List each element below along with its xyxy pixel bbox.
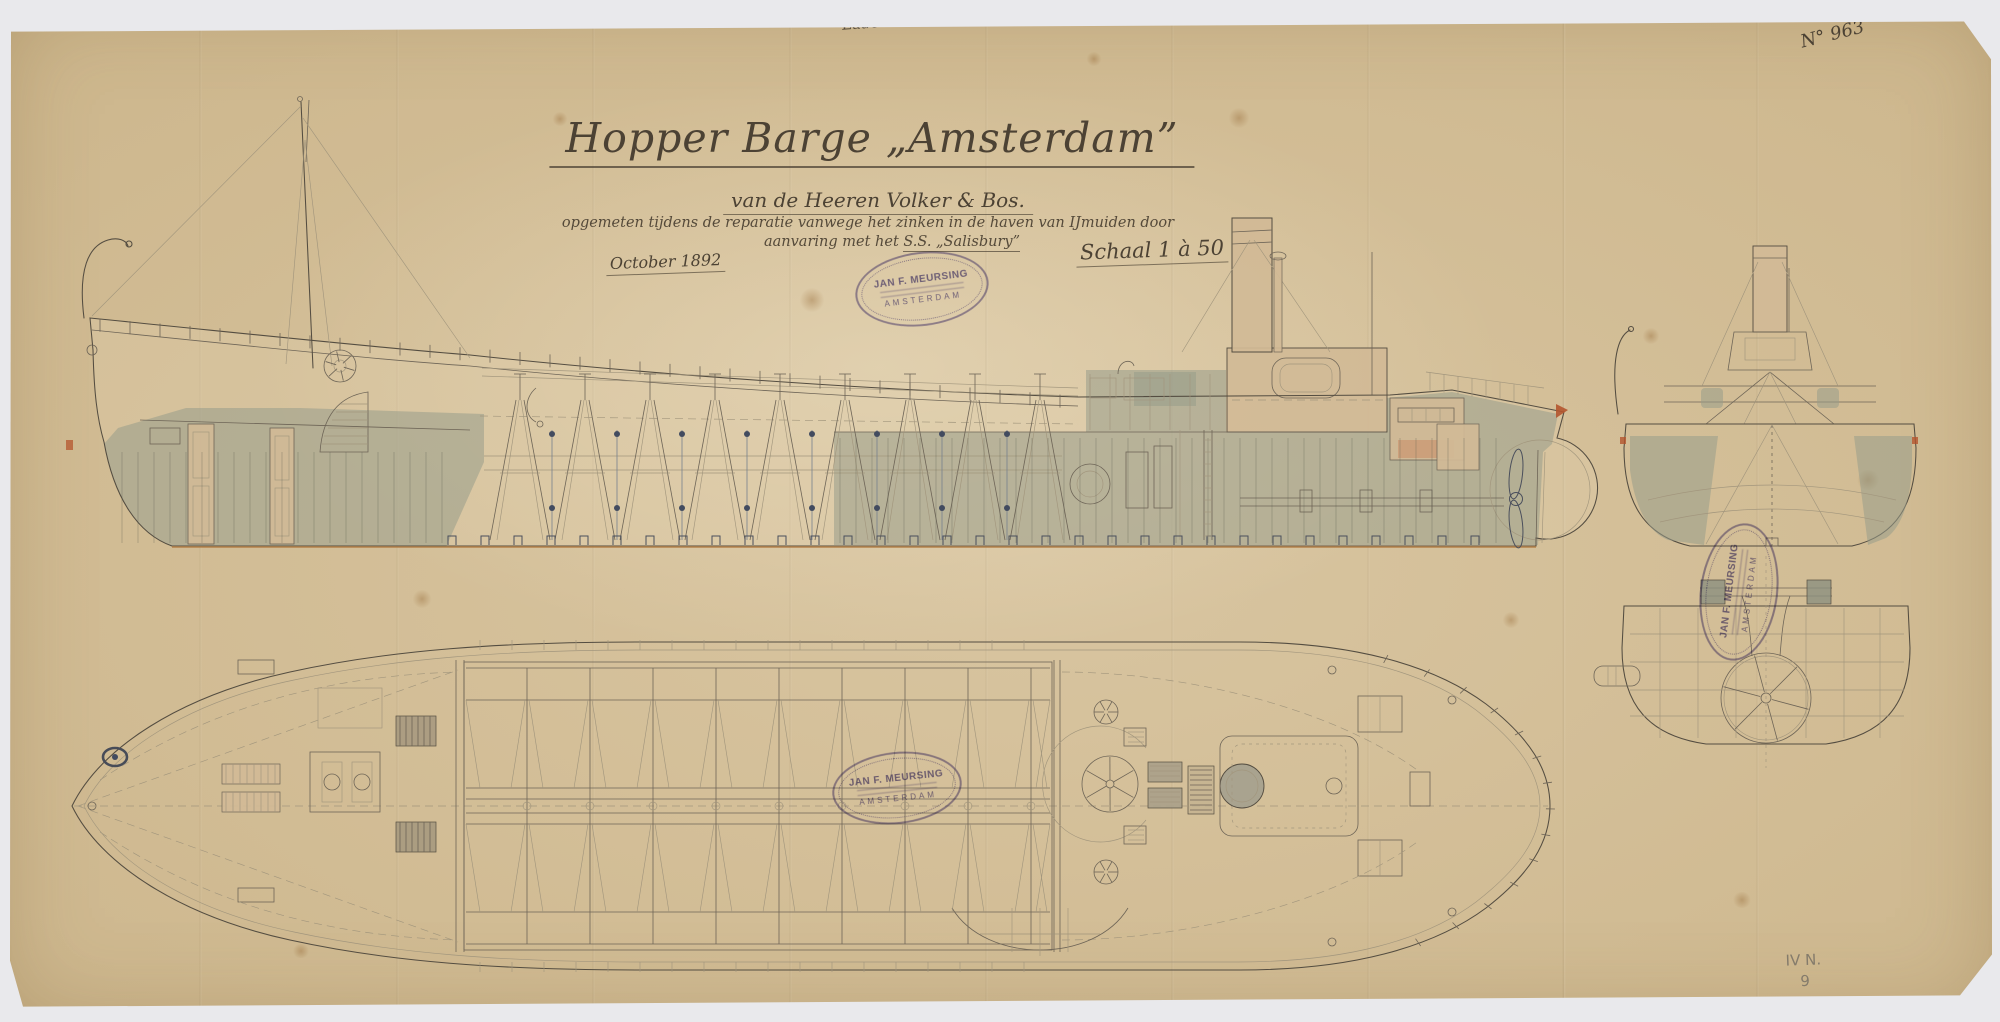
hopper-slope-line [1772, 425, 1838, 544]
windlass [310, 752, 380, 812]
deck-cleat [238, 888, 274, 902]
deck-bitt [1328, 938, 1336, 946]
hopper-wall-wash-left [1630, 436, 1718, 545]
bow-bollard-center [112, 754, 118, 760]
gypsy-head [354, 774, 370, 790]
description-line-1: opgemeten tijdens de reparatie vanwege h… [562, 215, 1174, 231]
corner-mark-line1: IV N. [1785, 949, 1821, 971]
steering-wheel-hub [1106, 780, 1114, 788]
stamp-city-text: AMSTERDAM [859, 790, 938, 807]
drawing-subtitle: van de Heeren Volker & Bos. [723, 188, 1033, 215]
fore-hatch [318, 688, 382, 728]
wheel-platform-arc [1043, 726, 1146, 842]
bow-body-section-view [1615, 246, 1918, 546]
scanned-ship-drawing: Lade 2 N° 963 Hopper Barge „Amsterdam” v… [0, 0, 2000, 1022]
engine-cylinder [1326, 778, 1342, 794]
bow-davit [82, 239, 128, 318]
windlass-drum [352, 762, 372, 802]
shaft-tube [1594, 666, 1640, 686]
engine-grating [1148, 788, 1182, 808]
steam-pipe [1274, 258, 1282, 352]
deck-bitt [1448, 908, 1456, 916]
stern-quarter-dashed [1062, 840, 1420, 940]
corner-mark-line2: 9 [1800, 970, 1822, 992]
hopper-wall-wash-right [1854, 436, 1912, 545]
stamp-illegible-line [881, 287, 964, 298]
brace-inner [1744, 372, 1770, 424]
description-text: opgemeten tijdens de reparatie vanwege h… [562, 215, 1174, 231]
deck-bitt [1448, 696, 1456, 704]
side-red-tab [1620, 437, 1626, 444]
description-prefix: aanvaring met het [764, 234, 903, 250]
colliding-ship-name: S.S. „Salisbury” [903, 234, 1020, 252]
section-davit-ball [1629, 327, 1634, 332]
stamp-illegible-line [857, 782, 937, 791]
engine-casing [1227, 348, 1387, 432]
bitt-block [1807, 580, 1831, 604]
section-davit [1615, 330, 1630, 414]
deck-bitt [1328, 666, 1336, 674]
deck-plan-view [72, 640, 1555, 972]
description-line-2: aanvaring met het S.S. „Salisbury” [764, 234, 1020, 250]
windlass-drum [322, 762, 342, 802]
forestay [92, 106, 301, 316]
hatch-grating [222, 792, 280, 812]
stern-quarter-dashed [1062, 672, 1420, 772]
stamp-city-text: AMSTERDAM [884, 290, 963, 308]
beam-block [1701, 388, 1723, 408]
archive-note: Lade 2 [841, 12, 894, 34]
engine-grating [1148, 762, 1182, 782]
corner-inventory-mark: IV N. 9 [1785, 949, 1822, 992]
shroud [286, 140, 305, 364]
wheel-pedestal [1780, 596, 1790, 656]
drawing-paper-sheet: Lade 2 N° 963 Hopper Barge „Amsterdam” v… [0, 0, 2000, 1022]
stamp-illegible-line [1737, 550, 1748, 635]
shroud [305, 140, 332, 366]
backstay [303, 118, 470, 358]
midship-house-wash [1134, 372, 1196, 406]
beam-block [1817, 388, 1839, 408]
hatch-grating [222, 764, 280, 784]
gypsy-head [324, 774, 340, 790]
counter-panel [1437, 424, 1479, 470]
margin-red-mark [66, 440, 73, 450]
brace-inner [1770, 372, 1796, 424]
scale-note: Schaal 1 à 50 [1076, 235, 1229, 267]
side-red-tab [1912, 437, 1918, 444]
mast-truck [298, 97, 303, 102]
deck-cleat [238, 660, 274, 674]
funnel-plan-circle [1220, 764, 1264, 808]
section-bridge-window [1745, 338, 1795, 360]
drawing-title: Hopper Barge „Amsterdam” [549, 114, 1194, 168]
date-note: October 1892 [606, 250, 726, 276]
stamp-city-text: AMSTERDAM [1740, 554, 1758, 633]
aft-locker [1410, 772, 1430, 806]
section-funnel [1753, 246, 1787, 332]
funnel [1232, 218, 1272, 352]
forecastle-door-panel [188, 424, 214, 544]
